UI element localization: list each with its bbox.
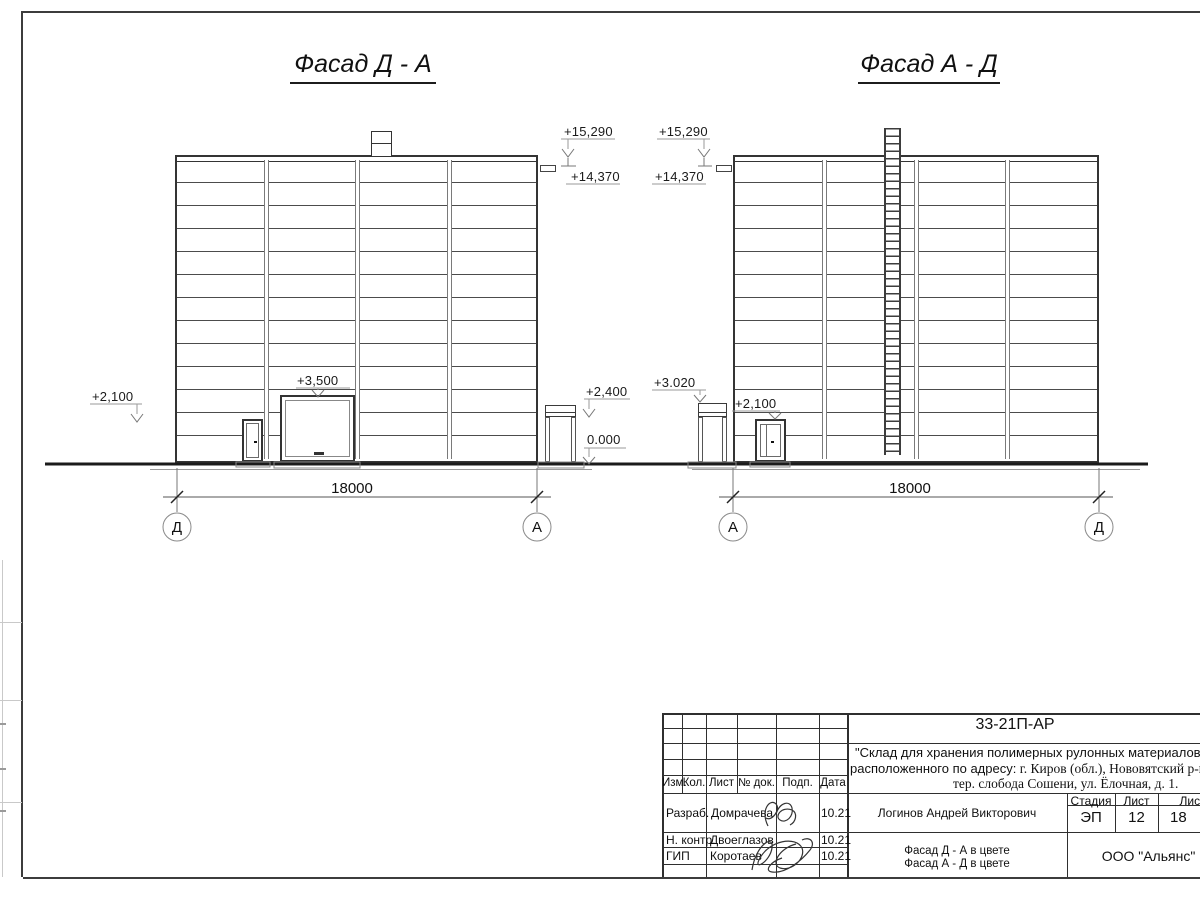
col-header-izm: Изм. [662, 777, 682, 789]
signer-role: ГИП [666, 849, 690, 863]
elevation-label: +3.020 [654, 375, 695, 390]
sheet-title-line1: Фасад Д - А в цвете [847, 845, 1067, 857]
elevation-label: +15,290 [659, 124, 708, 139]
project-name-line2-sans: расположенного по адресу: [850, 761, 1016, 776]
elevation-leaders-left [90, 139, 630, 464]
project-name-line2-serif: г. Киров (обл.), Нововятский р-н, [1016, 761, 1200, 776]
project-name-line2: расположенного по адресу: г. Киров (обл.… [850, 761, 1200, 777]
stage-value: ЭП [1067, 809, 1115, 826]
col-header-kol: Кол. [682, 777, 706, 789]
dimension-value: 18000 [870, 480, 950, 497]
sheet-value: 12 [1115, 809, 1158, 826]
col-header-data: Дата [819, 777, 847, 789]
sheets-value: 18 [1170, 809, 1200, 826]
elevation-label: 0.000 [587, 432, 621, 447]
project-name-line1: "Склад для хранения полимерных рулонных … [855, 745, 1200, 760]
left-dimension-chain [163, 468, 551, 541]
elevation-label: +14,370 [655, 169, 704, 184]
elevation-label: +3,500 [297, 373, 338, 388]
signer-role: Разраб. [666, 806, 709, 820]
col-header-ndok: № док. [737, 777, 776, 789]
axis-label: Д [162, 519, 192, 536]
sheet-title-line2: Фасад А - Д в цвете [847, 858, 1067, 870]
signature-icon [752, 839, 812, 872]
col-header-list: Лист [706, 777, 737, 789]
axis-label: А [718, 519, 748, 536]
elevation-label: +2,400 [586, 384, 627, 399]
chief-person-name: Логинов Андрей Викторович [847, 806, 1067, 820]
elevation-label: +14,370 [571, 169, 620, 184]
ground-line [45, 464, 1148, 470]
sheets-header: Листов [1158, 794, 1200, 808]
axis-label: А [522, 519, 552, 536]
sheet-header: Лист [1115, 794, 1158, 808]
company-name: ООО "Альянс" [1067, 848, 1200, 864]
right-dimension-chain [719, 468, 1113, 541]
elevation-label: +15,290 [564, 124, 613, 139]
stage-header: Стадия [1067, 794, 1115, 808]
elevation-label: +2,100 [92, 389, 133, 404]
drawing-sheet: Фасад Д - А Фасад А - Д [0, 0, 1200, 900]
signatures [740, 792, 860, 882]
dimension-value: 18000 [312, 480, 392, 497]
project-name-line3: тер. слобода Сошени, ул. Ёлочная, д. 1. [953, 776, 1178, 792]
elevation-label: +2,100 [735, 396, 776, 411]
axis-label: Д [1084, 519, 1114, 536]
col-header-podp: Подп. [776, 777, 819, 789]
signature-icon [765, 802, 796, 826]
signer-role: Н. контр. [666, 833, 716, 847]
document-code: 33-21П-АР [847, 716, 1183, 734]
